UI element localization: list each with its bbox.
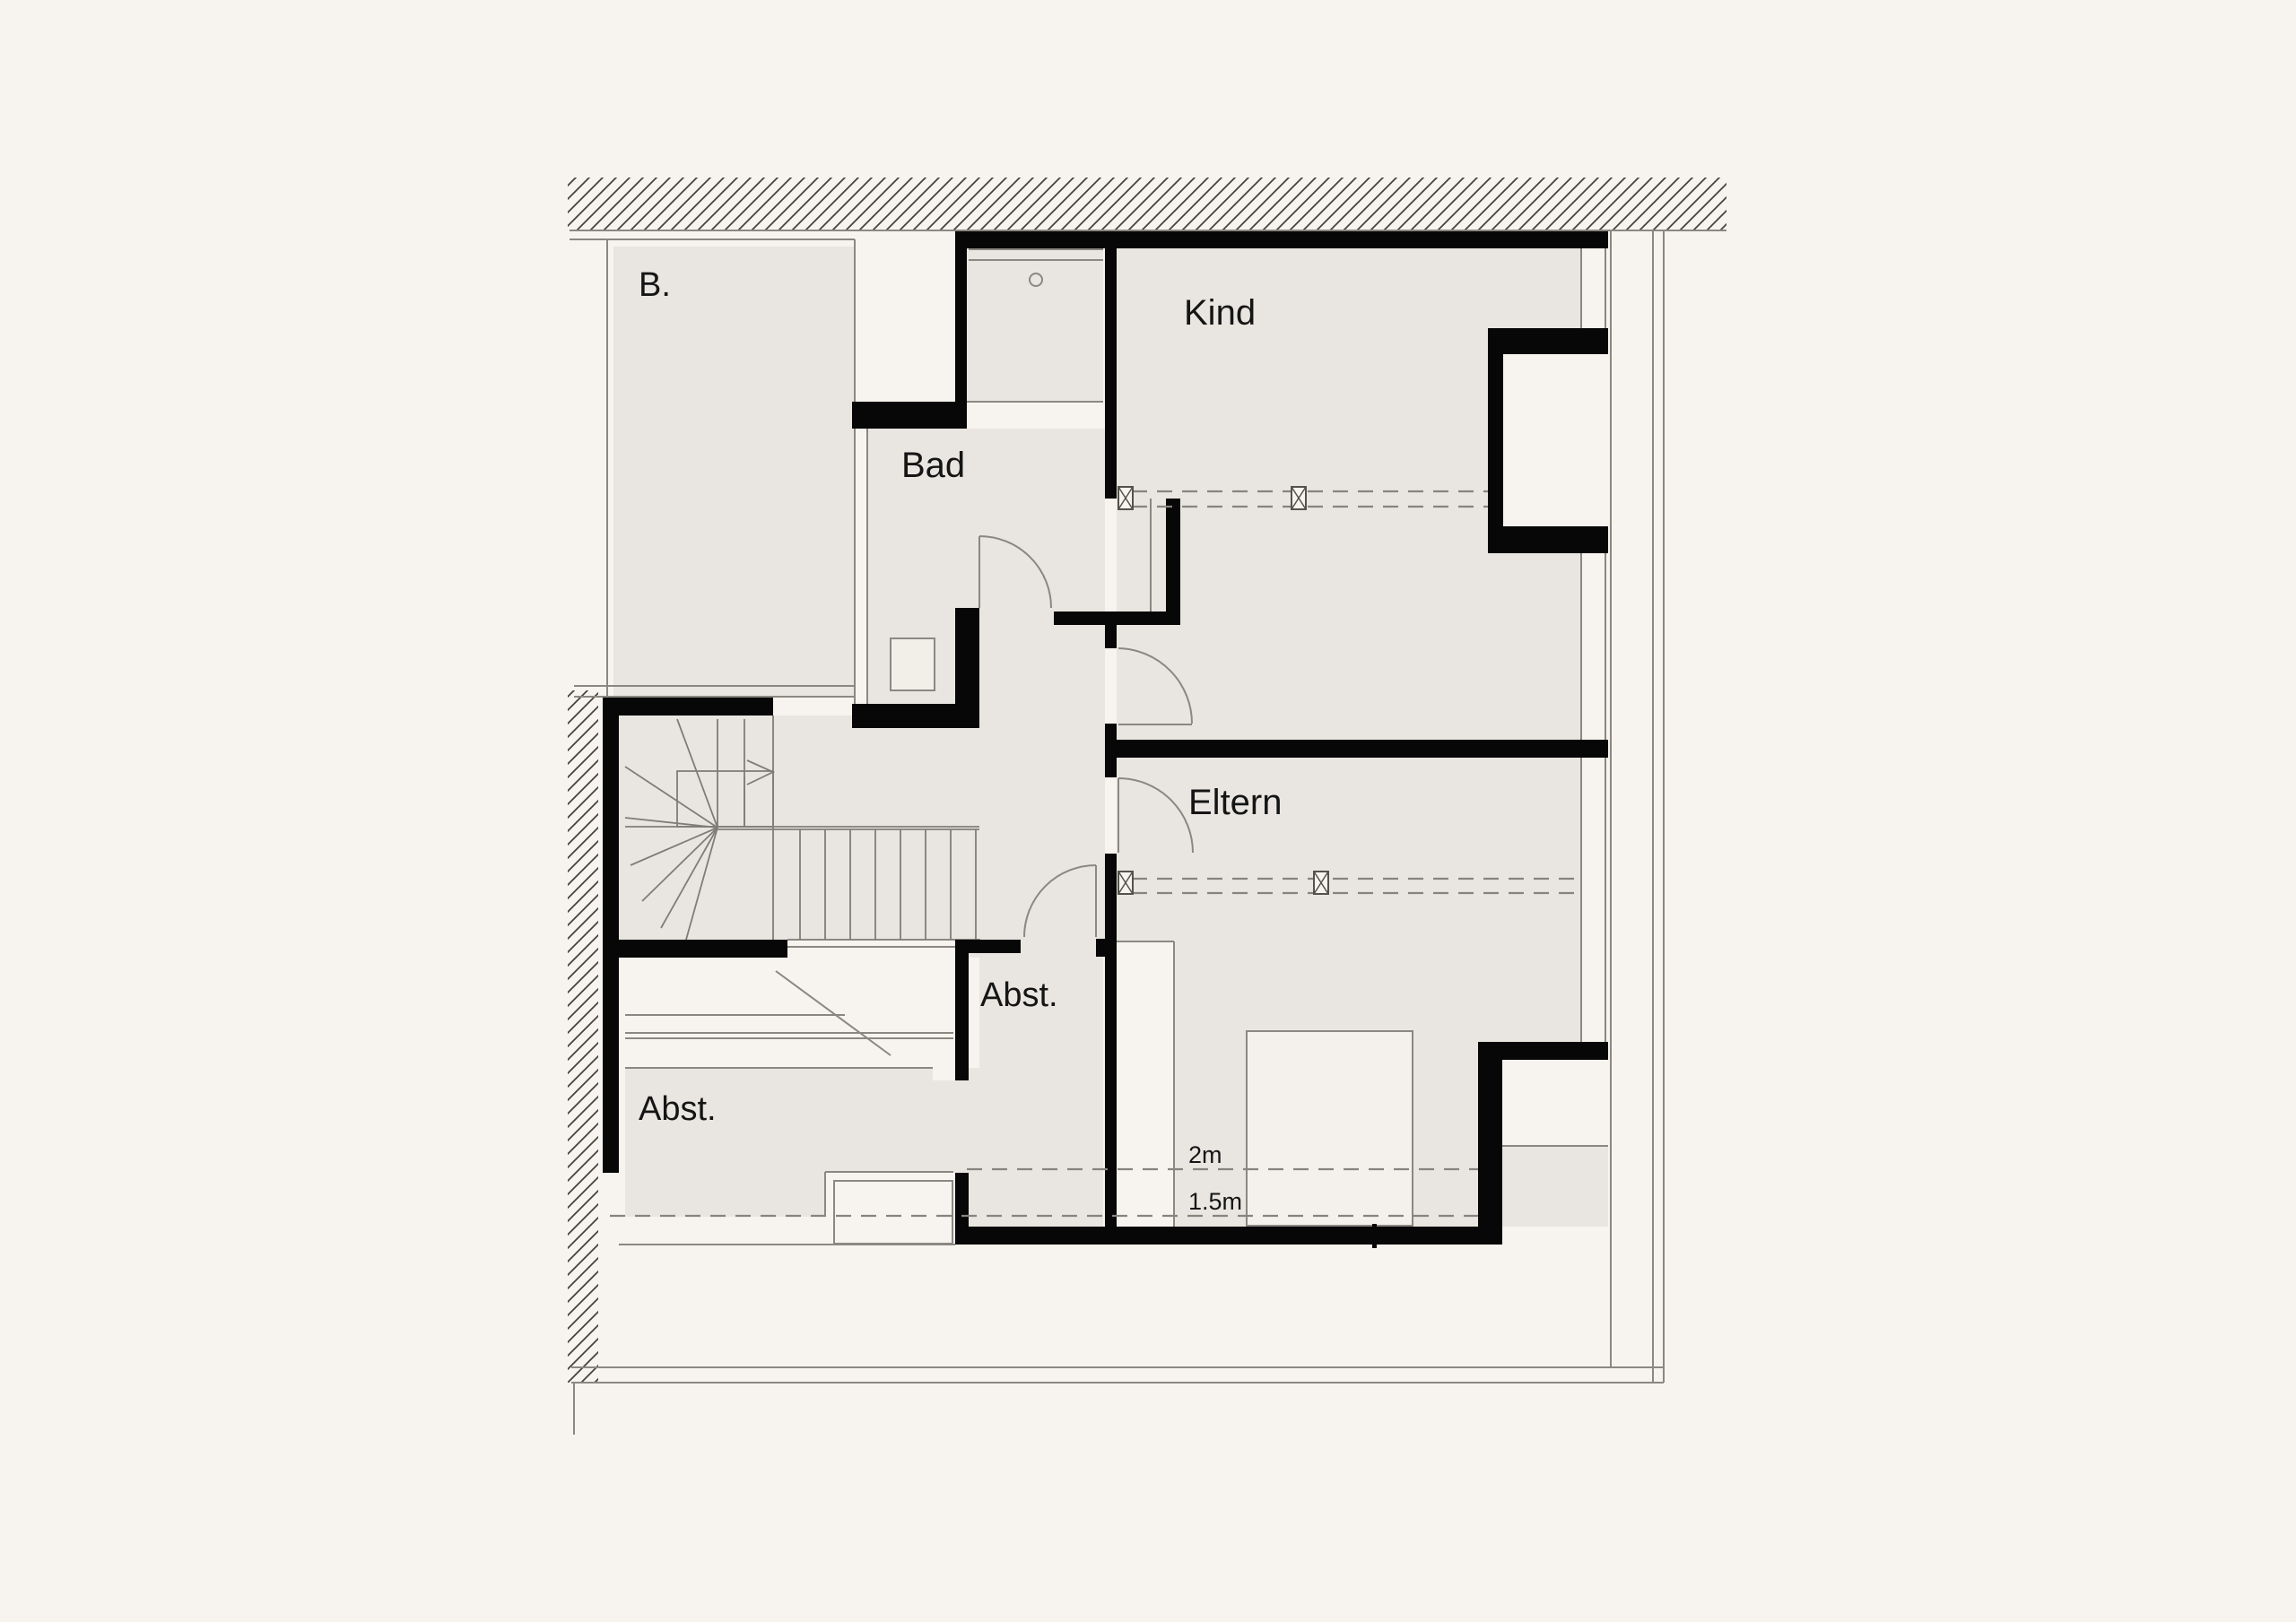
room-area-corridor xyxy=(979,608,1105,941)
room-label-storage-left: Abst. xyxy=(639,1090,717,1128)
room-label-bath: Bad xyxy=(901,446,965,485)
wall-stair-bottom xyxy=(603,940,787,958)
wall-corridor-parents xyxy=(1105,854,1117,1245)
marker-parents-mid xyxy=(1314,872,1328,894)
hatched-wall-band-top xyxy=(568,178,1726,230)
room-label-child: Kind xyxy=(1184,293,1256,333)
floor-plan-page: B. Bad Kind Eltern Abst. Abst. 2m 1.5m xyxy=(0,0,2296,1622)
doorway-storage-left xyxy=(933,1080,969,1173)
wall-bath-bottom xyxy=(852,704,979,728)
wall-child-niche-bottom xyxy=(1488,526,1608,553)
wall-bottom xyxy=(955,1227,1502,1245)
wall-bath-child-upper xyxy=(1105,231,1117,499)
floor-plan-svg: B. Bad Kind Eltern Abst. Abst. 2m 1.5m xyxy=(0,0,2296,1622)
wall-child-jog xyxy=(1166,499,1180,625)
wall-bath-door-sill xyxy=(1054,612,1179,625)
wall-corner-block xyxy=(1096,939,1117,957)
wall-storage-center-top xyxy=(955,940,1021,953)
height-label-2m: 2m xyxy=(1188,1141,1222,1168)
marker-child-mid xyxy=(1291,487,1306,509)
wall-child-niche-left xyxy=(1488,328,1503,553)
wall-parents-niche-left xyxy=(1478,1042,1502,1245)
wall-bath-top xyxy=(852,402,967,429)
wall-storage-center-left-upper xyxy=(955,953,969,1080)
room-area-balcony xyxy=(613,247,855,697)
room-label-storage-center: Abst. xyxy=(980,976,1058,1014)
wall-stair-top xyxy=(603,698,773,716)
room-area-bath-shaft xyxy=(967,248,1103,402)
height-label-1-5m: 1.5m xyxy=(1188,1188,1242,1215)
room-label-parents: Eltern xyxy=(1188,783,1283,822)
wall-stub-a xyxy=(1105,625,1117,648)
void-next-to-balcony xyxy=(867,231,955,402)
niche-parents xyxy=(1502,1060,1608,1146)
under-stair-zone xyxy=(619,958,979,1068)
storage-left-inner-box xyxy=(834,1181,952,1244)
hatched-wall-band-left xyxy=(568,690,598,1383)
niche-child xyxy=(1503,354,1608,526)
wall-child-parents xyxy=(1105,740,1608,758)
marker-child-left xyxy=(1118,487,1133,509)
wall-shaft-left xyxy=(955,231,967,429)
wall-top xyxy=(955,231,1608,248)
wall-stub-c xyxy=(1105,758,1117,777)
low-height-strip-parents xyxy=(1117,941,1174,1227)
marker-parents-left xyxy=(1118,872,1133,894)
knee-wall-strip-parents xyxy=(1581,758,1608,1042)
wall-child-niche-top xyxy=(1488,328,1608,354)
wall-left xyxy=(603,698,619,1173)
bed-rectangle xyxy=(1247,1031,1413,1226)
bath-fixture xyxy=(891,638,935,690)
section-tick xyxy=(1372,1224,1377,1248)
room-label-balcony: B. xyxy=(639,266,671,304)
